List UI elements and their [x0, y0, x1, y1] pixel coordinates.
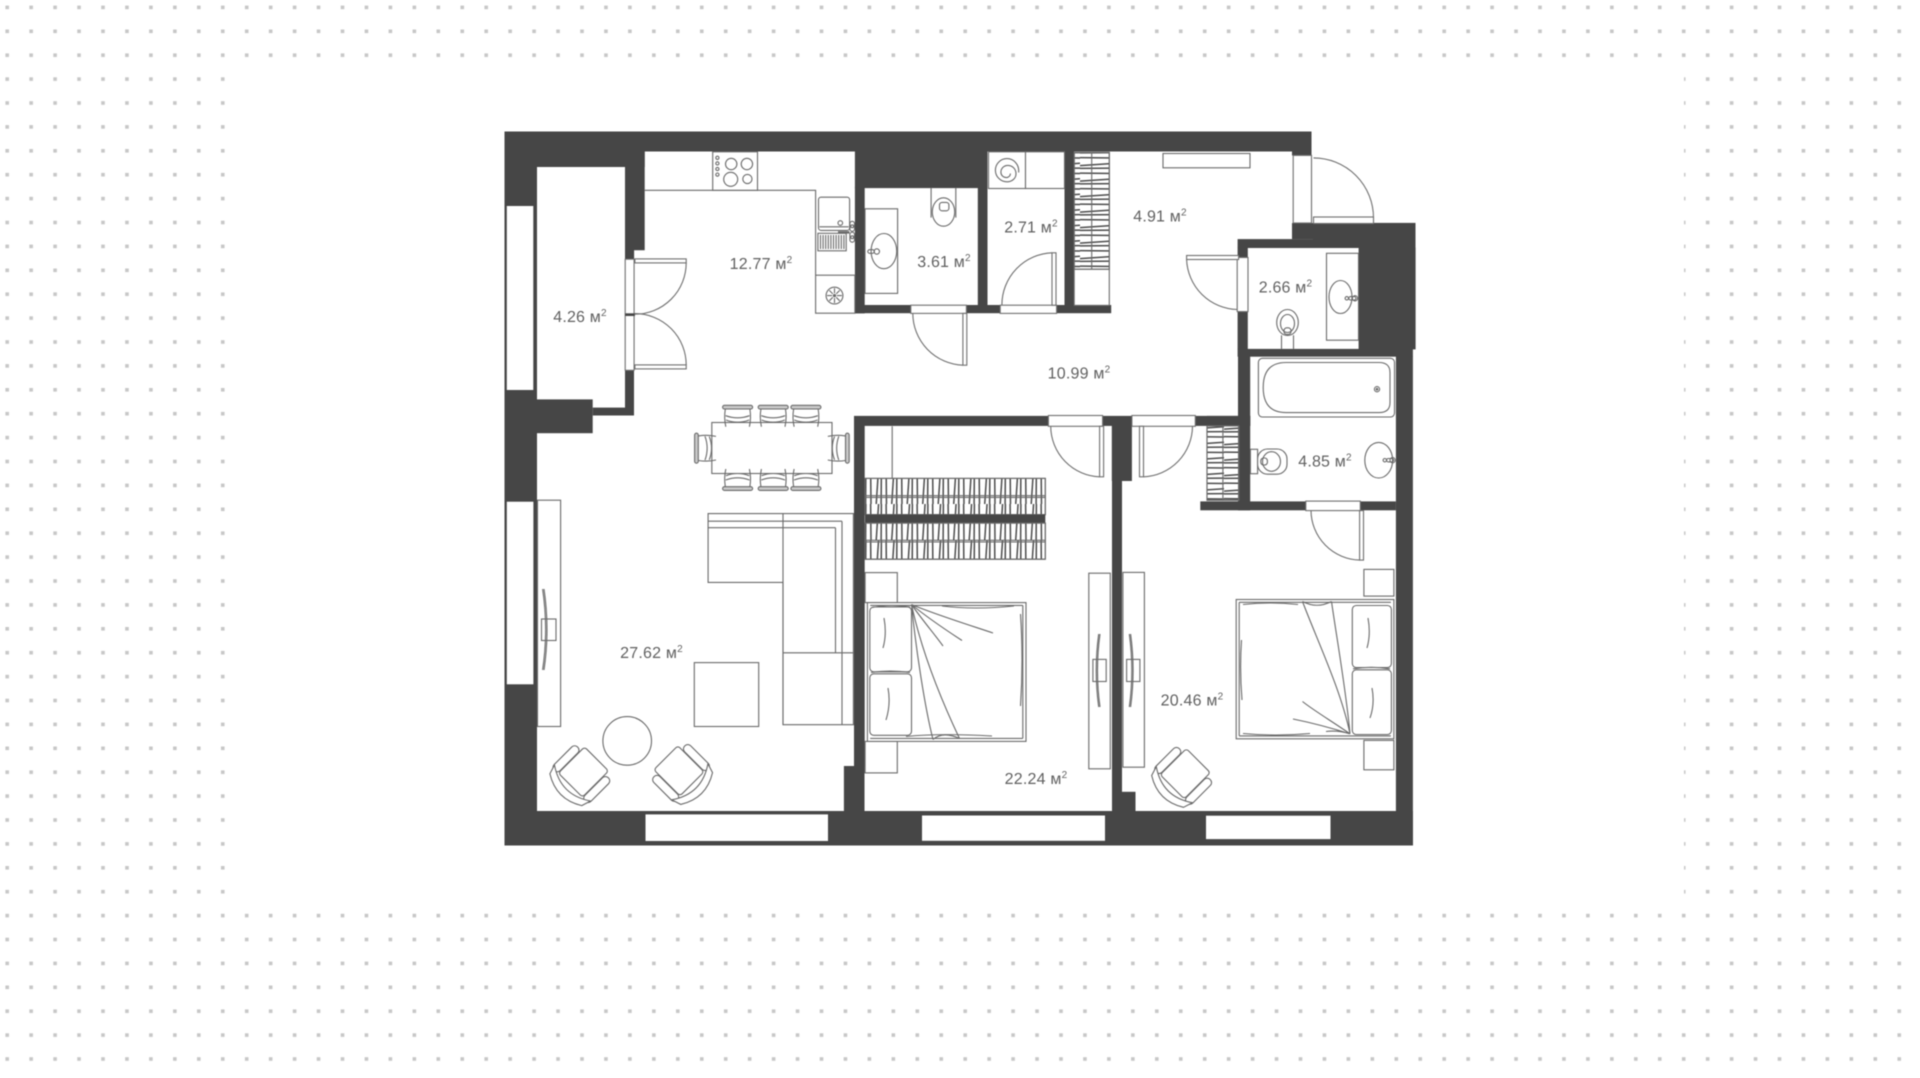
svg-text:4.91 м2: 4.91 м2 — [1133, 208, 1187, 226]
svg-text:3.61 м2: 3.61 м2 — [917, 253, 971, 271]
svg-text:2.66 м2: 2.66 м2 — [1259, 279, 1313, 297]
svg-text:2.71 м2: 2.71 м2 — [1004, 219, 1058, 237]
svg-text:12.77 м2: 12.77 м2 — [730, 255, 793, 273]
svg-text:10.99 м2: 10.99 м2 — [1048, 365, 1111, 383]
svg-text:4.26 м2: 4.26 м2 — [553, 308, 607, 326]
svg-text:27.62 м2: 27.62 м2 — [620, 644, 683, 662]
svg-text:20.46 м2: 20.46 м2 — [1161, 692, 1224, 710]
svg-text:4.85 м2: 4.85 м2 — [1298, 453, 1352, 471]
svg-text:22.24 м2: 22.24 м2 — [1005, 770, 1068, 788]
